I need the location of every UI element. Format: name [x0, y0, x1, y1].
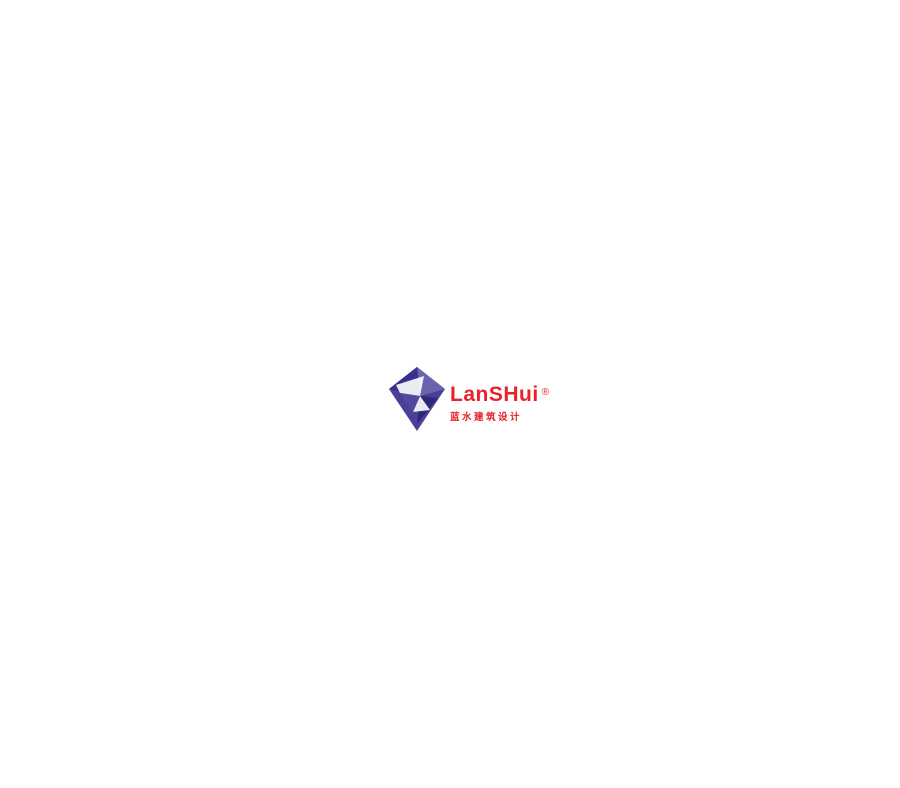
lanshui-logo: [388, 366, 446, 432]
watermark-brand: LanSHui: [450, 383, 539, 406]
watermark-subtitle: 蓝水建筑设计: [450, 409, 549, 423]
watermark-bottom: 广州蓝水: [535, 712, 687, 754]
registered-mark: ®: [542, 387, 549, 398]
diagram-canvas: LanSHui® 蓝水建筑设计 广州蓝水: [0, 0, 900, 788]
watermark-text: LanSHui® 蓝水建筑设计: [450, 384, 549, 423]
watermark: LanSHui® 蓝水建筑设计: [388, 366, 598, 436]
